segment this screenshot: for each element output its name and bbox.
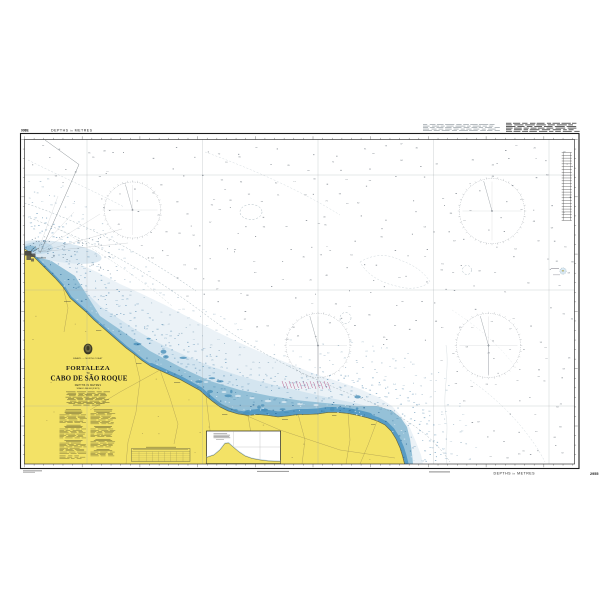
svg-text:CABO DE SÃO ROQUE: CABO DE SÃO ROQUE	[51, 375, 128, 383]
svg-text:2955: 2955	[590, 472, 598, 476]
svg-text:BRAZIL — NORTH COAST: BRAZIL — NORTH COAST	[73, 357, 103, 360]
svg-text:DEPTHS IN METRES: DEPTHS IN METRES	[75, 385, 102, 387]
svg-text:FORTALEZA: FORTALEZA	[66, 365, 110, 372]
svg-text:DEPTHS in METRES: DEPTHS in METRES	[51, 129, 93, 133]
svg-text:DEPTHS in METRES: DEPTHS in METRES	[494, 472, 536, 476]
svg-text:SCALE 1:300 000 (3°40´S): SCALE 1:300 000 (3°40´S)	[77, 387, 100, 390]
svg-text:998E: 998E	[21, 128, 30, 132]
